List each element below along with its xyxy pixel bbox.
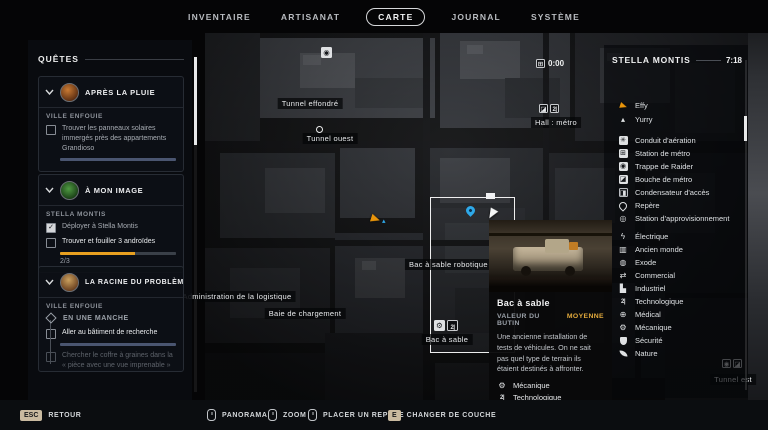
bottom-bar: ESC RETOUR PANORAMA ZOOM PLACER UN REPÈR… xyxy=(0,400,768,430)
technology-icon: 2| xyxy=(447,320,458,331)
legend-item-commercial[interactable]: ⇄Commercial xyxy=(604,269,675,282)
mouse-icon xyxy=(308,409,317,421)
legend-item-station-approvisionnement[interactable]: ◎Station d'approvisionnement xyxy=(604,212,729,225)
metro-station-icon: ⊞ xyxy=(618,149,628,158)
legend-item-securite[interactable]: Sécurité xyxy=(604,334,663,347)
mouse-wheel-icon xyxy=(268,409,277,421)
quest-location: STELLA MONTIS xyxy=(46,211,176,218)
legend-item-condensateur[interactable]: ◨Condensateur d'accès xyxy=(604,186,709,199)
objective-row: ✓ Aller au bâtiment de recherche xyxy=(46,328,176,339)
action-zoom[interactable]: ZOOM xyxy=(268,400,306,430)
map-label-baie-chargement: Baie de chargement xyxy=(265,308,346,319)
legend-title: STELLA MONTIS xyxy=(612,55,691,65)
objective-counter: 2/3 xyxy=(60,258,176,265)
objective-text: Déployer à Stella Montis xyxy=(62,222,138,233)
objective-text: Aller au bâtiment de recherche xyxy=(62,328,157,339)
legend-item-medical[interactable]: ⊕Médical xyxy=(604,308,661,321)
objective-checkbox: ✓ xyxy=(46,238,56,248)
stage-label: EN UNE MANCHE xyxy=(63,315,129,322)
tooltip-tag-mecanique: ⚙ Mécanique xyxy=(497,381,604,390)
waypoint-pin-icon xyxy=(618,202,628,210)
objective-connector xyxy=(50,320,51,364)
map-label-bac-robotique: Bac à sable robotique A xyxy=(405,259,499,270)
location-tooltip: Bac à sable VALEUR DU BUTIN MOYENNE Une … xyxy=(489,220,612,410)
tunnel-ouest-marker[interactable] xyxy=(316,126,323,133)
legend-header: STELLA MONTIS 7:18 xyxy=(604,45,748,65)
vent-icon: ✳ xyxy=(618,136,628,145)
legend-item-station-metro[interactable]: ⊞Station de métro xyxy=(604,147,690,160)
objective-progress xyxy=(60,158,176,161)
loot-value: MOYENNE xyxy=(567,313,604,320)
raider-hatch-icon: ◉ xyxy=(321,47,332,58)
objective-text: Chercher le coffre à graines dans la « p… xyxy=(62,351,176,371)
nature-icon xyxy=(618,350,628,357)
objective-row: Chercher le coffre à graines dans la « p… xyxy=(46,351,176,371)
objective-text: Trouver les panneaux solaires immergés p… xyxy=(62,124,176,154)
metro-timer-value: 0:00 xyxy=(548,59,564,68)
metro-entrance-icon: ◪ xyxy=(539,104,548,113)
objective-row: ✓ Déployer à Stella Montis xyxy=(46,222,176,233)
background-scene-strip xyxy=(748,0,768,430)
legend-item-bouche-metro[interactable]: ◪Bouche de métro xyxy=(604,173,692,186)
action-panorama[interactable]: PANORAMA xyxy=(207,400,268,430)
objective-row: ✓ Trouver les panneaux solaires immergés… xyxy=(46,124,176,154)
objective-checkbox xyxy=(46,352,56,362)
legend-item-trappe-raider[interactable]: ◉Trappe de Raider xyxy=(604,160,693,173)
tooltip-description: Une ancienne installation de tests de vé… xyxy=(497,332,604,375)
map-selection-tab xyxy=(486,193,495,199)
loot-value-label: VALEUR DU BUTIN xyxy=(497,313,561,327)
ally-marker[interactable]: ▴ xyxy=(382,218,386,225)
tab-journal[interactable]: JOURNAL xyxy=(447,9,505,25)
objective-checkbox: ✓ xyxy=(46,329,56,339)
player-marker[interactable] xyxy=(371,210,380,228)
tab-systeme[interactable]: SYSTÈME xyxy=(527,9,584,25)
legend-item-electrique[interactable]: ϟÉlectrique xyxy=(604,230,668,243)
metro-station-icon: ⊞ xyxy=(536,59,545,68)
map-label-hall-metro: Hall : métro xyxy=(531,117,581,128)
quest-card-header[interactable]: APRÈS LA PLUIE xyxy=(39,77,183,108)
access-capacitor-icon: ◨ xyxy=(618,188,628,197)
quest-panel: QUÊTES APRÈS LA PLUIE VILLE ENFOUIE ✓ Tr… xyxy=(28,40,192,400)
quest-card-header[interactable]: LA RACINE DU PROBLÈME xyxy=(39,267,183,298)
quest-giver-avatar xyxy=(60,181,79,200)
quest-location: VILLE ENFOUIE xyxy=(46,303,176,310)
mouse-cursor xyxy=(489,207,498,219)
stage-diamond-icon xyxy=(45,312,56,323)
exodus-icon: ◍ xyxy=(618,258,628,267)
legend-item-industriel[interactable]: ▙Industriel xyxy=(604,282,665,295)
medical-icon: ⊕ xyxy=(618,310,628,319)
quest-card-header[interactable]: À MON IMAGE xyxy=(39,175,183,206)
mechanical-icon: ⚙ xyxy=(434,320,445,331)
mechanical-icon: ⚙ xyxy=(618,323,628,332)
tooltip-image xyxy=(489,220,612,292)
quest-stage-row: EN UNE MANCHE xyxy=(46,314,176,322)
supply-station-icon: ◎ xyxy=(618,214,628,223)
tab-inventaire[interactable]: INVENTAIRE xyxy=(184,9,255,25)
raider-hatch-marker[interactable]: ◉ xyxy=(321,42,332,60)
action-retour[interactable]: ESC RETOUR xyxy=(20,400,81,430)
legend-item-ancien-monde[interactable]: ▥Ancien monde xyxy=(604,243,683,256)
chevron-down-icon xyxy=(45,187,54,193)
legend-item-conduit-aeration[interactable]: ✳Conduit d'aération xyxy=(604,134,696,147)
loot-value-row: VALEUR DU BUTIN MOYENNE xyxy=(497,313,604,327)
tab-artisanat[interactable]: ARTISANAT xyxy=(277,9,344,25)
action-changer-couche[interactable]: E CHANGER DE COUCHE xyxy=(388,400,496,430)
bac-a-sable-markers[interactable]: ⚙ 2| xyxy=(434,320,458,331)
objective-progress xyxy=(60,343,176,346)
player-arrow-icon xyxy=(618,103,628,109)
legend-item-yurry[interactable]: ▴Yurry xyxy=(604,113,653,126)
hall-metro-markers[interactable]: ◪ 2| xyxy=(539,104,559,113)
objective-checkbox: ✓ xyxy=(46,125,56,135)
technology-icon: 2| xyxy=(618,299,628,305)
tooltip-title: Bac à sable xyxy=(497,298,604,308)
legend-item-technologique[interactable]: 2|Technologique xyxy=(604,295,683,308)
quest-title: LA RACINE DU PROBLÈME xyxy=(85,279,184,286)
legend-scrollbar-thumb[interactable] xyxy=(744,116,747,141)
map-label-tunnel-effondre: Tunnel effondré xyxy=(278,98,343,109)
commercial-icon: ⇄ xyxy=(618,271,628,280)
e-key-badge: E xyxy=(388,410,401,421)
raider-hatch-icon: ◉ xyxy=(618,162,628,171)
player-arrow-icon xyxy=(370,214,381,224)
quest-card-racine-du-probleme: LA RACINE DU PROBLÈME VILLE ENFOUIE EN U… xyxy=(38,266,184,372)
electric-icon: ϟ xyxy=(618,232,628,241)
top-nav: INVENTAIRE ARTISANAT CARTE JOURNAL SYSTÈ… xyxy=(0,0,768,33)
quest-panel-title: QUÊTES xyxy=(38,54,79,64)
legend-time: 7:18 xyxy=(726,56,742,65)
quest-location: VILLE ENFOUIE xyxy=(46,113,176,120)
map-label-bac-a-sable: Bac à sable xyxy=(422,334,473,345)
quest-panel-header: QUÊTES xyxy=(28,40,192,72)
industrial-icon: ▙ xyxy=(618,284,628,293)
objective-row: ✓ Trouver et fouiller 3 androïdes xyxy=(46,237,176,248)
mechanical-icon: ⚙ xyxy=(497,381,507,390)
metro-timer: ⊞ 0:00 xyxy=(536,59,564,68)
ancient-world-icon: ▥ xyxy=(618,245,628,254)
quest-giver-avatar xyxy=(60,83,79,102)
legend-item-repere[interactable]: Repère xyxy=(604,199,660,212)
quest-scrollbar-thumb[interactable] xyxy=(194,57,197,145)
mouse-icon xyxy=(207,409,216,421)
quest-card-apres-la-pluie: APRÈS LA PLUIE VILLE ENFOUIE ✓ Trouver l… xyxy=(38,76,184,172)
legend-panel: STELLA MONTIS 7:18 Effy ▴Yurry ✳Conduit … xyxy=(604,45,748,398)
objective-progress xyxy=(60,252,176,255)
chevron-down-icon xyxy=(45,89,54,95)
ally-triangle-icon: ▴ xyxy=(618,116,628,123)
legend-scrollbar-rail xyxy=(745,60,747,390)
esc-key-badge: ESC xyxy=(20,410,42,421)
objective-checkbox: ✓ xyxy=(46,223,56,233)
legend-item-nature[interactable]: Nature xyxy=(604,347,658,360)
chevron-down-icon xyxy=(45,279,54,285)
divider xyxy=(696,60,721,61)
metro-entrance-icon: ◪ xyxy=(618,175,628,184)
security-icon xyxy=(618,337,628,345)
tab-carte[interactable]: CARTE xyxy=(366,8,425,26)
legend-item-mecanique[interactable]: ⚙Mécanique xyxy=(604,321,672,334)
quest-giver-avatar xyxy=(60,273,79,292)
technology-icon: 2| xyxy=(550,104,559,113)
divider xyxy=(85,59,184,60)
quest-title: APRÈS LA PLUIE xyxy=(85,88,155,97)
quest-card-a-mon-image: À MON IMAGE STELLA MONTIS ✓ Déployer à S… xyxy=(38,174,184,273)
objective-text: Trouver et fouiller 3 androïdes xyxy=(62,237,155,248)
map-label-tunnel-ouest: Tunnel ouest xyxy=(303,133,358,144)
quest-title: À MON IMAGE xyxy=(85,186,143,195)
legend-item-effy[interactable]: Effy xyxy=(604,99,648,112)
